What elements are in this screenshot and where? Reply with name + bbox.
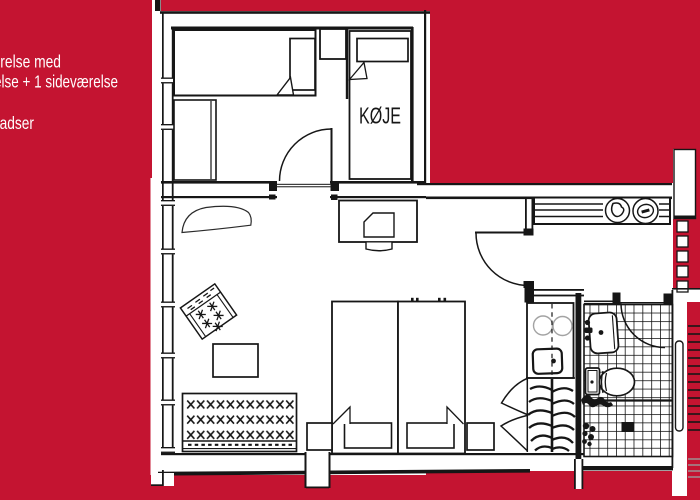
svg-text:ærelse med: ærelse med [0, 52, 61, 72]
svg-text:pladser: pladser [0, 113, 34, 133]
svg-text:KØJE: KØJE [359, 103, 401, 129]
svg-text:else + 1 sideværelse: else + 1 sideværelse [0, 72, 118, 92]
